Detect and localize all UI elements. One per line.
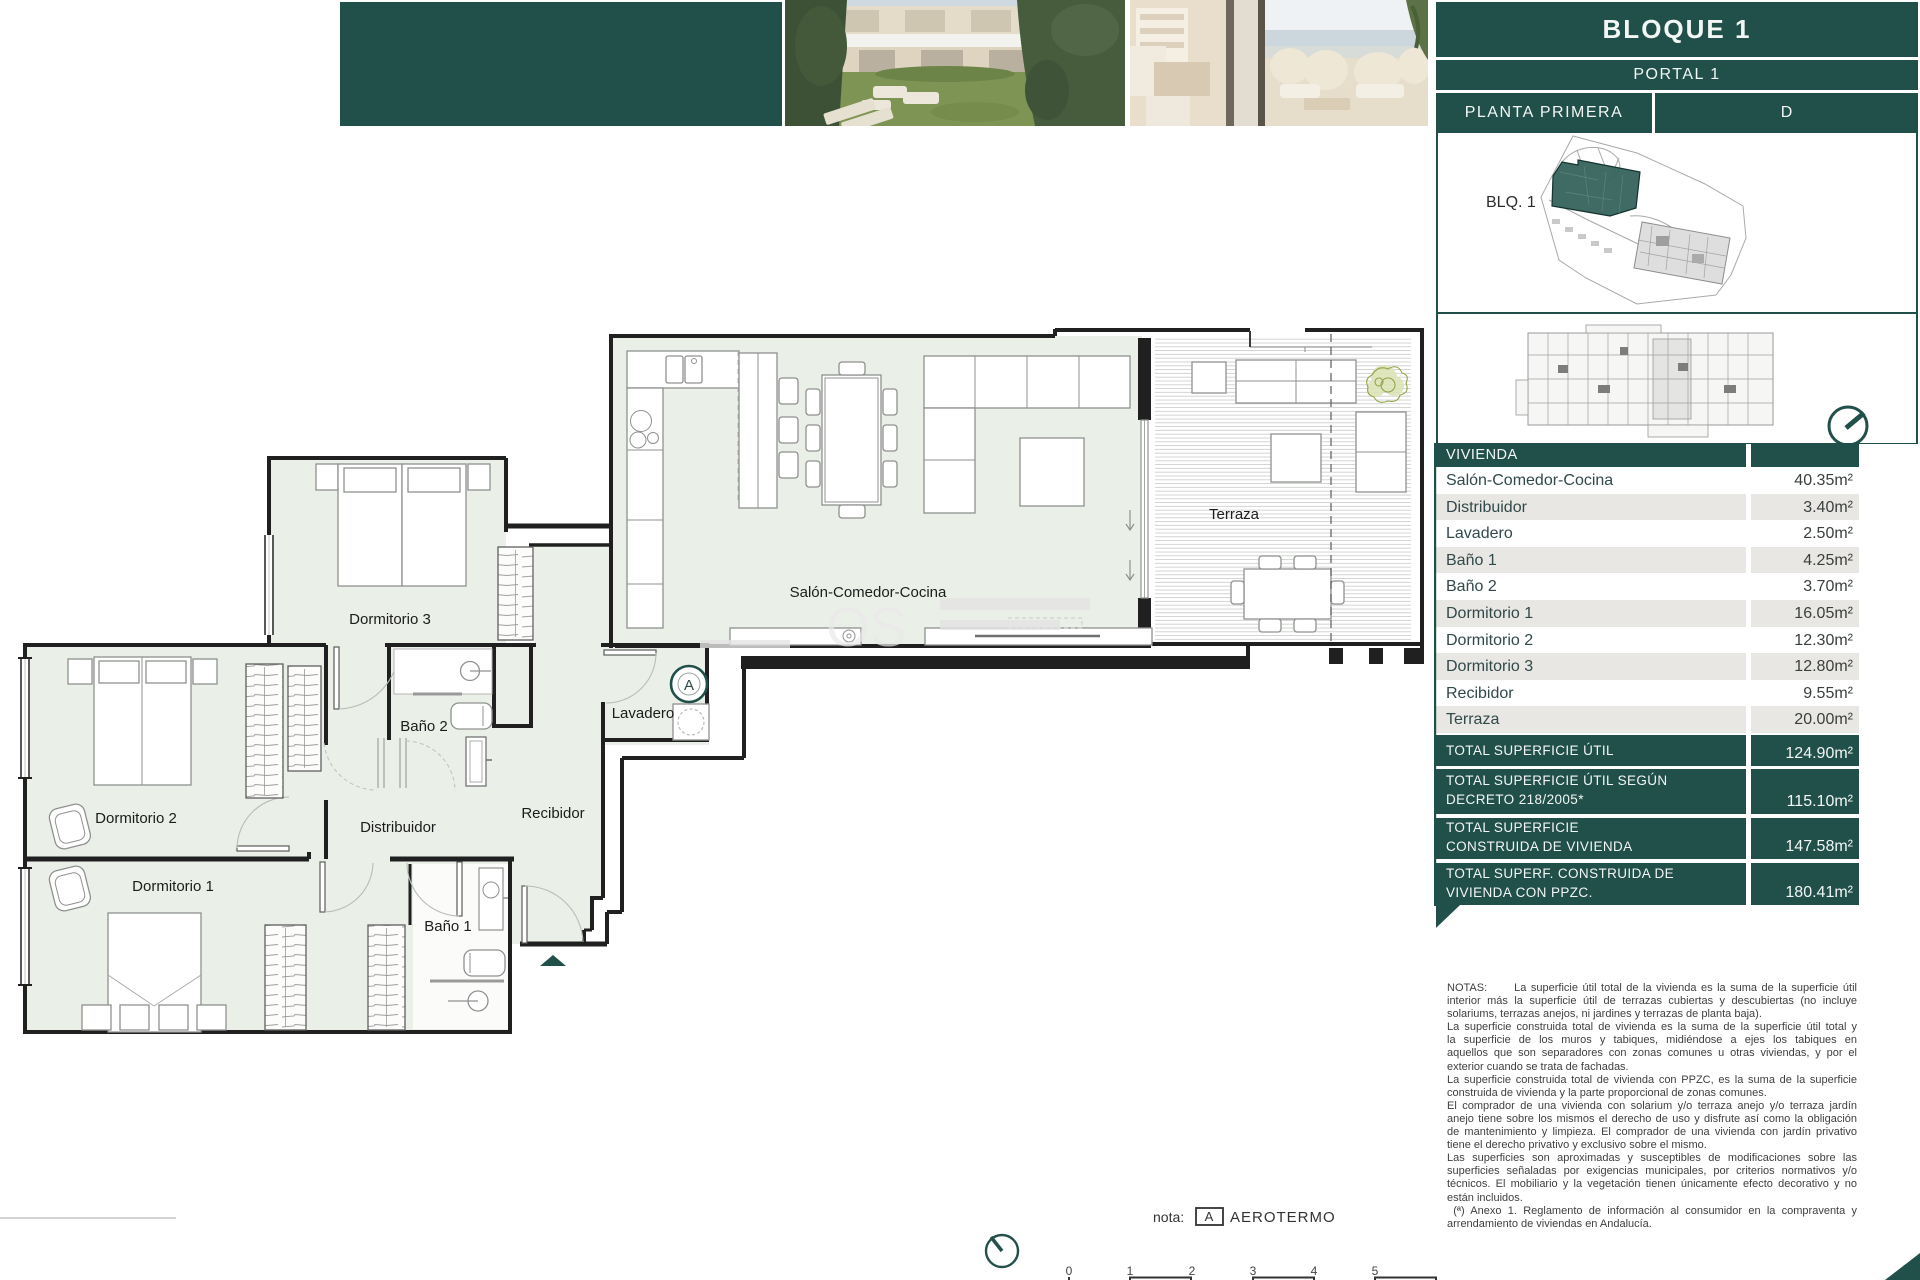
svg-text:Lavadero: Lavadero <box>612 705 675 722</box>
svg-text:Distribuidor: Distribuidor <box>360 819 436 836</box>
svg-text:Dormitorio 1: Dormitorio 1 <box>132 878 214 895</box>
svg-text:Salón-Comedor-Cocina: Salón-Comedor-Cocina <box>790 584 947 601</box>
svg-text:1: 1 <box>1127 1264 1134 1278</box>
svg-text:A: A <box>684 677 694 694</box>
svg-text:5: 5 <box>1372 1264 1379 1278</box>
svg-text:A: A <box>1205 1209 1214 1224</box>
svg-text:Terraza: Terraza <box>1209 506 1260 523</box>
svg-text:4: 4 <box>1311 1264 1318 1278</box>
svg-text:BLQ. 1: BLQ. 1 <box>1486 194 1536 211</box>
svg-text:Recibidor: Recibidor <box>521 805 584 822</box>
svg-text:Dormitorio 2: Dormitorio 2 <box>95 810 177 827</box>
svg-text:Baño 2: Baño 2 <box>400 718 448 735</box>
svg-text:AEROTERMO: AEROTERMO <box>1230 1209 1336 1226</box>
svg-text:Baño 1: Baño 1 <box>424 918 472 935</box>
svg-text:2: 2 <box>1189 1264 1196 1278</box>
svg-text:nota:: nota: <box>1153 1209 1184 1225</box>
svg-text:OS: OS <box>826 595 907 658</box>
svg-text:Dormitorio 3: Dormitorio 3 <box>349 611 431 628</box>
svg-text:3: 3 <box>1250 1264 1257 1278</box>
svg-text:0: 0 <box>1066 1264 1073 1278</box>
